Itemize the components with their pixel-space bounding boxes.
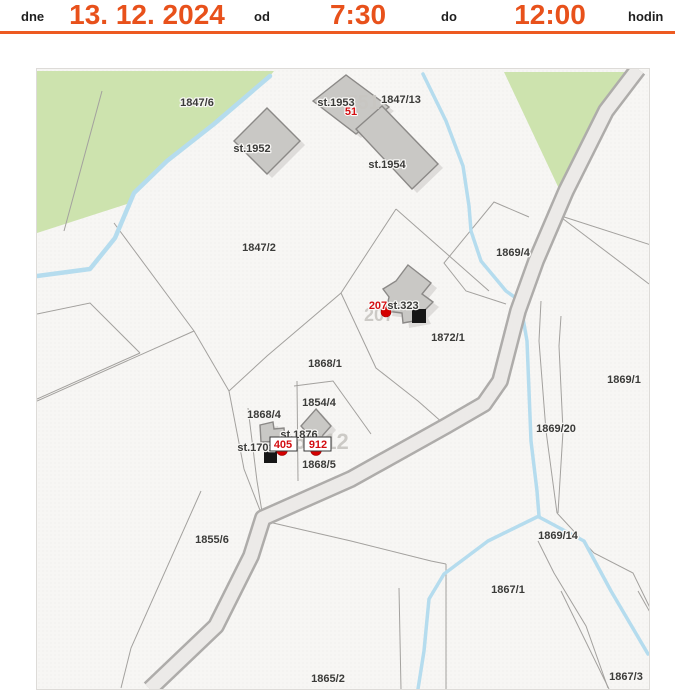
map-svg: E51207405 912 1847/61847/131847/21869/41…	[37, 69, 649, 689]
house-number-label: 207	[369, 300, 387, 312]
parcel-label: 1847/6	[180, 97, 214, 109]
building-st1952	[234, 108, 300, 174]
stream-fork-left	[418, 516, 539, 689]
buildings	[234, 75, 438, 463]
parcel-label: 1867/3	[609, 671, 643, 683]
parcel-label: 1869/1	[607, 374, 641, 386]
parcel-label: 1865/2	[311, 673, 345, 685]
building-label: st.323	[387, 300, 418, 312]
accent-divider-line	[0, 31, 675, 34]
house-number-label: 51	[345, 106, 357, 118]
building-label: st.1701	[237, 442, 274, 454]
building-label: st.1952	[233, 143, 270, 155]
notice-page: dne 13. 12. 2024 od 7:30 do 12:00 hodin	[0, 0, 675, 700]
parcel-label: 1872/1	[431, 332, 465, 344]
dne-label: dne	[21, 9, 44, 24]
parcel-label: 1868/4	[247, 409, 282, 421]
parcel-label: 1868/1	[308, 358, 342, 370]
time-from: 7:30	[316, 0, 400, 31]
building-label: st.1954	[368, 159, 406, 171]
do-label: do	[441, 9, 457, 24]
hodin-label: hodin	[628, 9, 663, 24]
boxed-house-number: 912	[309, 439, 327, 451]
parcel-label: 1869/14	[538, 530, 579, 542]
building-st1954	[356, 106, 438, 189]
cadastral-map: E51207405 912 1847/61847/131847/21869/41…	[36, 68, 650, 690]
parcel-label: 1855/6	[195, 534, 229, 546]
parcel-label: 1847/2	[242, 242, 276, 254]
outage-date: 13. 12. 2024	[64, 0, 230, 31]
parcel-label: 1867/1	[491, 584, 525, 596]
boxed-house-number: 405	[274, 439, 292, 451]
parcel-label: 1869/4	[496, 247, 531, 259]
time-to: 12:00	[500, 0, 600, 31]
od-label: od	[254, 9, 270, 24]
parcel-label: 1847/13	[381, 94, 421, 106]
parcel-label: 1868/5	[302, 459, 336, 471]
parcel-label: 1854/4	[302, 397, 337, 409]
parcel-label: 1869/20	[536, 423, 576, 435]
